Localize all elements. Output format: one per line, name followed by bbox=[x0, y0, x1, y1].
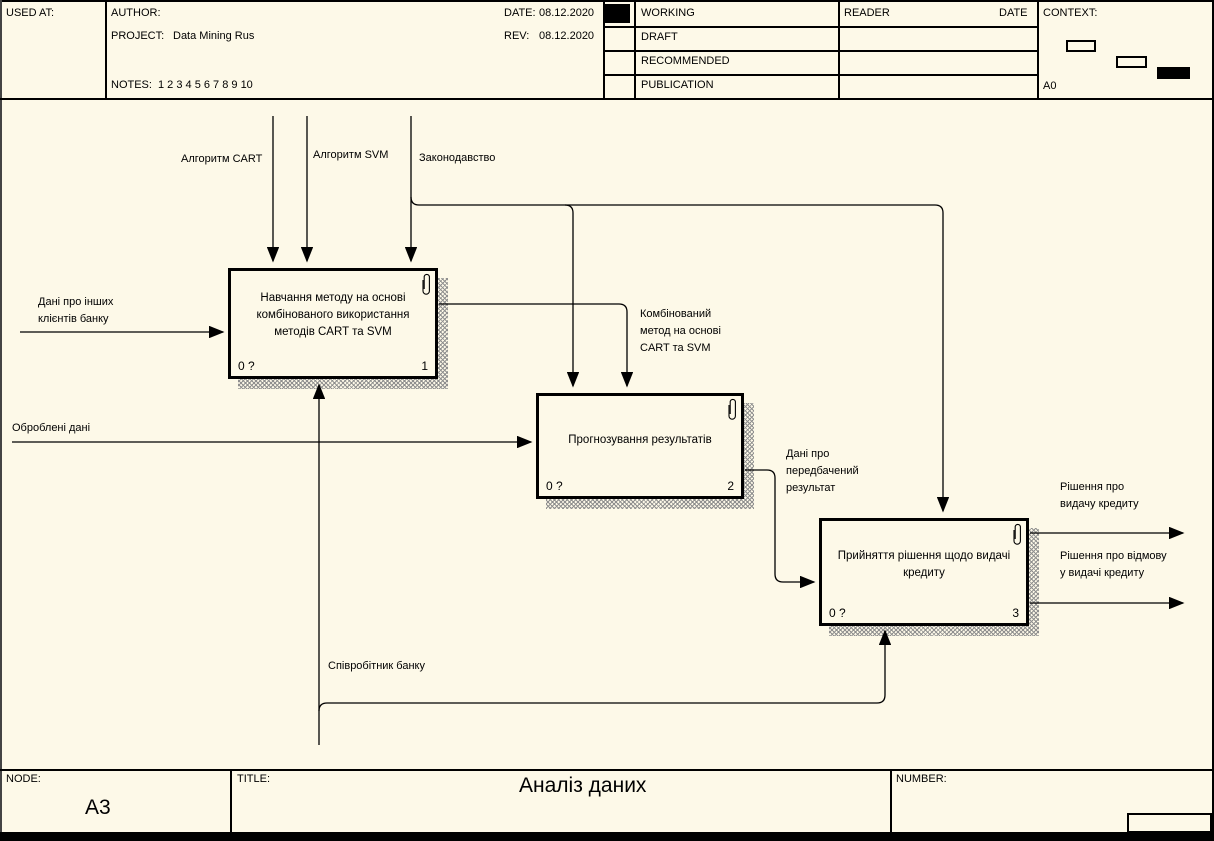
status-working: WORKING bbox=[641, 7, 695, 19]
border-left bbox=[0, 0, 2, 841]
label-other-clients: Дані про інших клієнтів банку bbox=[38, 294, 134, 328]
project-value: Data Mining Rus bbox=[173, 30, 254, 42]
arrow-combined-method bbox=[439, 304, 627, 386]
activity-box-1-label: Навчання методу на основі комбінованого … bbox=[231, 271, 435, 341]
activity-box-2-number: 2 bbox=[727, 479, 734, 493]
paperclip-icon bbox=[725, 396, 739, 424]
activity-box-3-number: 3 bbox=[1012, 606, 1019, 620]
context-thumbnail-box-active bbox=[1157, 67, 1190, 79]
label-cart: Алгоритм CART bbox=[181, 151, 262, 168]
footer-divider bbox=[890, 771, 892, 833]
status-row-line bbox=[603, 50, 1039, 52]
arrow-law-to-box2 bbox=[565, 205, 573, 386]
header-bottom-line bbox=[0, 98, 1214, 100]
status-publication: PUBLICATION bbox=[641, 79, 714, 91]
paperclip-icon bbox=[419, 271, 433, 299]
node-value: A3 bbox=[85, 796, 111, 820]
activity-box-2[interactable]: Прогнозування результатів 0 ? 2 bbox=[536, 393, 744, 499]
footer-top-line bbox=[0, 769, 1214, 771]
context-thumbnail-box bbox=[1066, 40, 1096, 52]
number-label: NUMBER: bbox=[896, 773, 947, 785]
label-law: Законодавство bbox=[419, 150, 495, 167]
bottom-black-bar bbox=[0, 834, 1214, 841]
label-svm: Алгоритм SVM bbox=[313, 147, 388, 164]
footer-divider bbox=[230, 771, 232, 833]
label-grant: Рішення про видачу кредиту bbox=[1060, 479, 1146, 513]
activity-box-2-code: 0 ? bbox=[546, 479, 563, 493]
author-label: AUTHOR: bbox=[111, 7, 161, 19]
activity-box-2-label: Прогнозування результатів bbox=[539, 396, 741, 449]
activity-box-3-label: Прийняття рішення щодо видачі кредиту bbox=[822, 521, 1026, 582]
used-at-label: USED AT: bbox=[6, 7, 54, 19]
notes-label: NOTES: bbox=[111, 79, 152, 91]
label-processed: Оброблені дані bbox=[12, 420, 90, 437]
label-predicted: Дані про передбачений результат bbox=[786, 446, 884, 497]
rev-label: REV: bbox=[504, 30, 529, 42]
working-checkbox[interactable] bbox=[605, 4, 630, 23]
status-draft: DRAFT bbox=[641, 31, 678, 43]
reader-date-label: DATE bbox=[999, 7, 1028, 19]
status-recommended: RECOMMENDED bbox=[641, 55, 730, 67]
label-employee: Співробітник банку bbox=[328, 658, 425, 675]
context-label: CONTEXT: bbox=[1043, 7, 1097, 19]
label-combined: Комбінований метод на основі CART та SVM bbox=[640, 306, 740, 357]
context-node-value: A0 bbox=[1043, 80, 1056, 92]
date-label: DATE: bbox=[504, 7, 536, 19]
activity-box-1-number: 1 bbox=[421, 359, 428, 373]
status-row-line bbox=[603, 74, 1039, 76]
node-label: NODE: bbox=[6, 773, 41, 785]
footer-corner-box bbox=[1127, 813, 1212, 833]
border-top bbox=[0, 0, 1214, 2]
activity-box-1[interactable]: Навчання методу на основі комбінованого … bbox=[228, 268, 438, 379]
idef0-diagram-page: USED AT: AUTHOR: PROJECT: Data Mining Ru… bbox=[0, 0, 1214, 841]
rev-value: 08.12.2020 bbox=[539, 30, 594, 42]
notes-values: 1 2 3 4 5 6 7 8 9 10 bbox=[158, 79, 253, 91]
label-refuse: Рішення про відмову у видачі кредиту bbox=[1060, 548, 1170, 582]
paperclip-icon bbox=[1010, 521, 1024, 549]
activity-box-3-code: 0 ? bbox=[829, 606, 846, 620]
activity-box-3[interactable]: Прийняття рішення щодо видачі кредиту 0 … bbox=[819, 518, 1029, 626]
date-value: 08.12.2020 bbox=[539, 7, 594, 19]
header-divider bbox=[105, 2, 107, 98]
title-value: Аналіз даних bbox=[519, 774, 646, 798]
title-label: TITLE: bbox=[237, 773, 270, 785]
context-thumbnail-box bbox=[1116, 56, 1147, 68]
project-label: PROJECT: bbox=[111, 30, 164, 42]
status-row-line bbox=[603, 26, 1039, 28]
reader-label: READER bbox=[844, 7, 890, 19]
activity-box-1-code: 0 ? bbox=[238, 359, 255, 373]
